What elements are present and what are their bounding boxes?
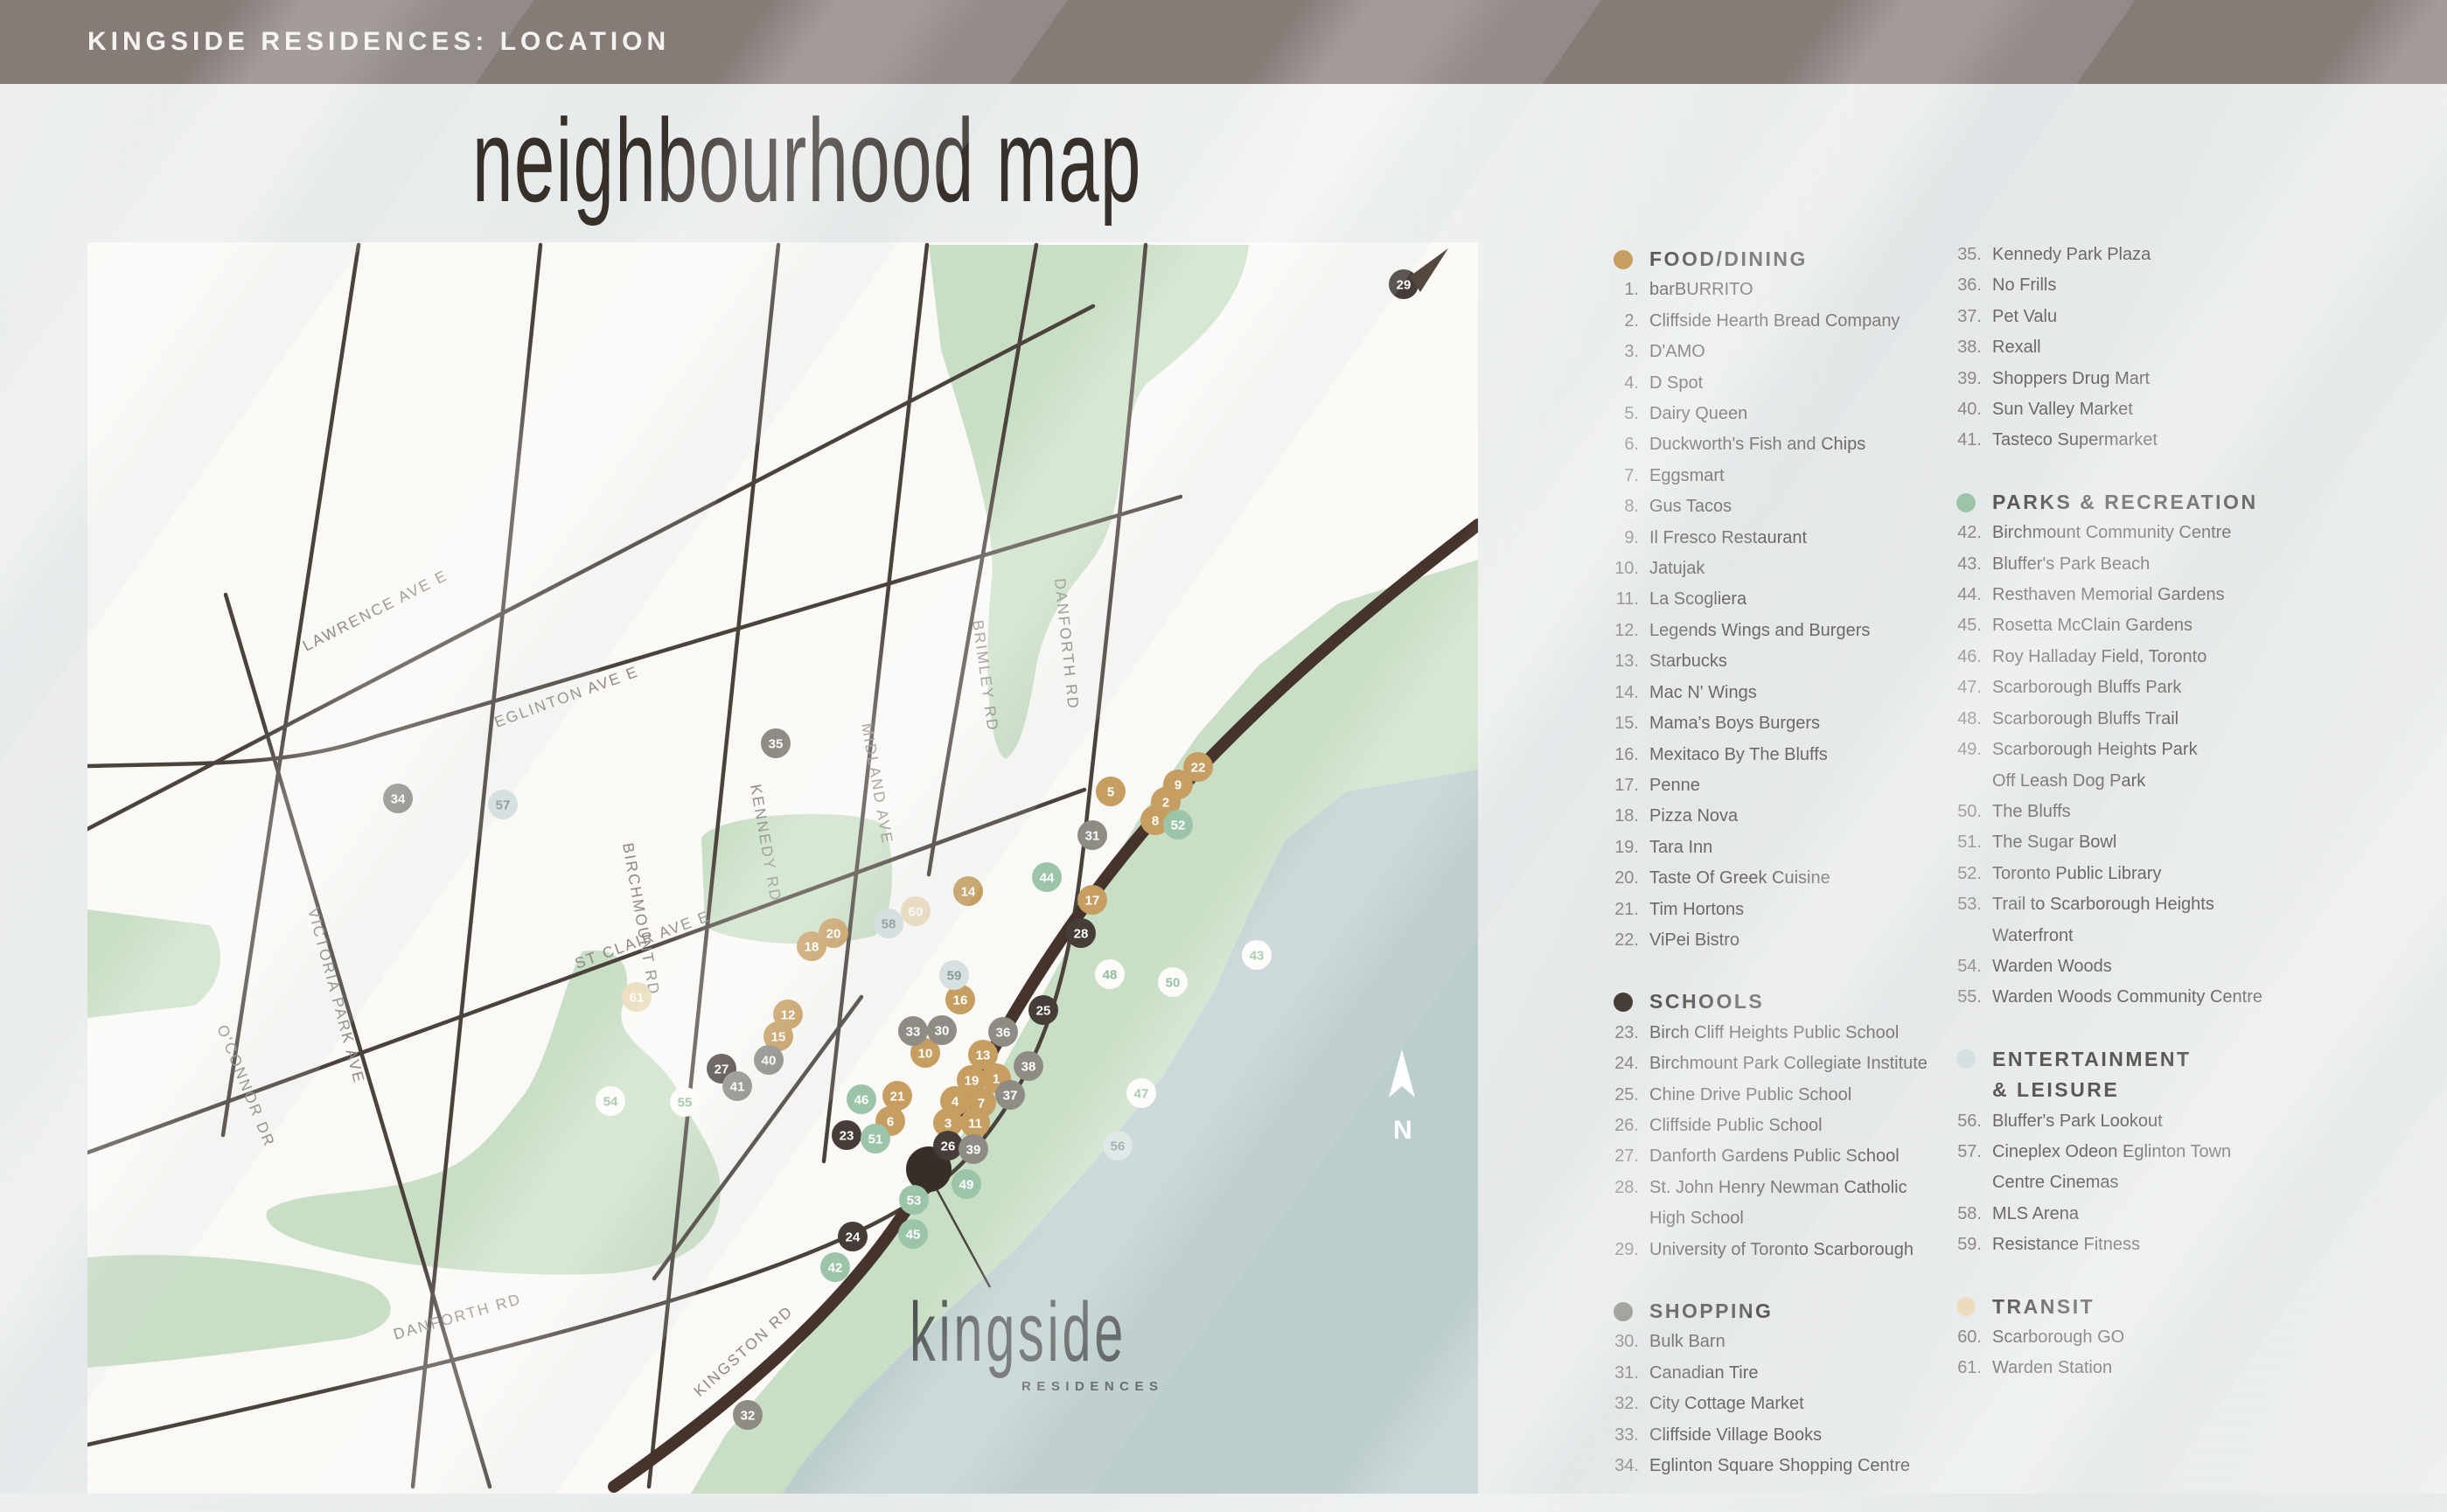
legend-item: 15.Mama's Boys Burgers [1609, 708, 1968, 739]
map-marker-23: 23 [832, 1120, 861, 1150]
legend-item-label: Scarborough Bluffs Park [1992, 672, 2181, 703]
map-marker-34: 34 [383, 784, 413, 813]
legend-item-number: 46. [1952, 642, 1982, 672]
map-marker-21: 21 [882, 1081, 912, 1111]
legend-item: 50.The Bluffs [1952, 797, 2372, 827]
svg-text:49: 49 [959, 1178, 974, 1193]
legend-item-label: Shoppers Drug Mart [1992, 364, 2150, 394]
legend-item: 20.Taste Of Greek Cuisine [1609, 863, 1968, 894]
legend-item-label: barBURRITO [1649, 275, 1753, 305]
legend-item-number: 36. [1952, 270, 1982, 301]
legend-item-label: Mexitaco By The Bluffs [1649, 740, 1828, 770]
map-marker-52: 52 [1163, 810, 1193, 840]
map-marker-55: 55 [670, 1087, 700, 1117]
legend-item-number: 7. [1609, 461, 1639, 491]
svg-text:10: 10 [918, 1047, 933, 1062]
legend-item-label: No Frills [1992, 270, 2056, 301]
legend-item-number: 32. [1609, 1389, 1639, 1419]
svg-text:14: 14 [961, 885, 976, 900]
svg-text:35: 35 [769, 737, 784, 752]
legend-item-label: Centre Cinemas [1992, 1167, 2119, 1198]
legend-item: 61.Warden Station [1952, 1353, 2372, 1383]
map-marker-49: 49 [952, 1169, 981, 1199]
legend-item-label: D'AMO [1649, 337, 1705, 367]
legend-item-label: University of Toronto Scarborough [1649, 1235, 1914, 1265]
svg-text:20: 20 [826, 927, 841, 942]
legend-item-number: 61. [1952, 1353, 1982, 1383]
svg-text:13: 13 [976, 1049, 991, 1063]
legend-item-number: 48. [1952, 704, 1982, 735]
legend-item-number: 50. [1952, 797, 1982, 827]
svg-text:33: 33 [906, 1025, 921, 1040]
svg-text:26: 26 [941, 1139, 956, 1154]
svg-text:36: 36 [996, 1026, 1011, 1041]
legend-item-number: 42. [1952, 518, 1982, 548]
legend-item: 45.Rosetta McClain Gardens [1952, 610, 2372, 641]
legend-item-label: Mama's Boys Burgers [1649, 708, 1820, 739]
legend-item-number: 20. [1609, 863, 1639, 894]
legend-item-label: Pet Valu [1992, 302, 2057, 332]
legend-item-label: Jatujak [1649, 554, 1705, 584]
legend-item-label: The Sugar Bowl [1992, 827, 2116, 858]
map-marker-51: 51 [861, 1124, 890, 1153]
map-marker-59: 59 [939, 960, 969, 990]
legend-item: 23.Birch Cliff Heights Public School [1609, 1018, 1968, 1049]
svg-text:40: 40 [762, 1054, 777, 1069]
legend-item-label: Warden Woods [1992, 951, 2112, 982]
legend-item: 12.Legends Wings and Burgers [1609, 616, 1968, 646]
legend-item: 10.Jatujak [1609, 554, 1968, 584]
legend-item-number: 23. [1609, 1018, 1639, 1049]
map-marker-57: 57 [488, 790, 518, 819]
svg-text:61: 61 [630, 991, 645, 1006]
legend-item: 42.Birchmount Community Centre [1952, 518, 2372, 548]
north-label: N [1393, 1116, 1412, 1145]
legend-parks-dot-icon [1956, 493, 1976, 512]
svg-text:48: 48 [1103, 968, 1118, 983]
legend-item-label: Toronto Public Library [1992, 859, 2161, 889]
svg-text:39: 39 [966, 1143, 981, 1158]
map-marker-36: 36 [988, 1017, 1018, 1047]
legend-item-label: Off Leash Dog Park [1992, 766, 2145, 797]
legend-item-label: Birch Cliff Heights Public School [1649, 1018, 1899, 1049]
legend-item: 7.Eggsmart [1609, 461, 1968, 491]
svg-text:57: 57 [496, 798, 511, 813]
map-marker-48: 48 [1095, 959, 1125, 989]
legend-item-number: 12. [1609, 616, 1639, 646]
map-marker-14: 14 [953, 876, 983, 906]
legend-item-label: Danforth Gardens Public School [1649, 1141, 1900, 1172]
svg-text:19: 19 [965, 1074, 979, 1089]
svg-text:47: 47 [1134, 1087, 1149, 1102]
legend-item-number: 44. [1952, 580, 1982, 610]
legend-item-label: Warden Station [1992, 1353, 2112, 1383]
legend-item-label: Chine Drive Public School [1649, 1080, 1851, 1111]
legend-item: 26.Cliffside Public School [1609, 1111, 1968, 1141]
svg-text:23: 23 [840, 1129, 854, 1144]
legend-item-label: Cliffside Public School [1649, 1111, 1823, 1141]
legend-item: 18.Pizza Nova [1609, 801, 1968, 832]
legend-transit-dot-icon [1956, 1297, 1976, 1316]
legend-item-label: La Scogliera [1649, 584, 1746, 615]
map-marker-13: 13 [968, 1040, 998, 1070]
map-marker-17: 17 [1077, 885, 1107, 915]
legend-item: 53.Trail to Scarborough Heights [1952, 889, 2372, 920]
legend-item-label: Tim Hortons [1649, 895, 1744, 925]
legend-item-number: 52. [1952, 859, 1982, 889]
legend-item-label: Il Fresco Restaurant [1649, 523, 1807, 554]
legend-food-dot-icon [1614, 250, 1633, 269]
legend-item-number: 6. [1609, 429, 1639, 460]
legend-item: 22.ViPei Bistro [1609, 925, 1968, 956]
legend-item-label: High School [1649, 1203, 1744, 1234]
svg-text:51: 51 [868, 1132, 883, 1147]
svg-text:5: 5 [1107, 785, 1114, 800]
legend-item: 54.Warden Woods [1952, 951, 2372, 982]
legend-item-label: D Spot [1649, 368, 1703, 399]
svg-text:34: 34 [391, 792, 406, 807]
legend-item: 37.Pet Valu [1952, 302, 2372, 332]
legend-item: 39.Shoppers Drug Mart [1952, 364, 2372, 394]
legend-item-number: 14. [1609, 678, 1639, 708]
svg-text:3: 3 [945, 1117, 952, 1132]
legend-item: 48.Scarborough Bluffs Trail [1952, 704, 2372, 735]
map-marker-54: 54 [596, 1086, 625, 1116]
svg-text:30: 30 [935, 1024, 950, 1039]
legend-item-label: Roy Halladay Field, Toronto [1992, 642, 2206, 672]
svg-text:25: 25 [1036, 1004, 1051, 1019]
legend-item-number: 34. [1609, 1451, 1639, 1481]
svg-text:9: 9 [1175, 778, 1182, 793]
legend-item: 51.The Sugar Bowl [1952, 827, 2372, 858]
map-marker-47: 47 [1126, 1078, 1156, 1108]
legend-column-1: FOOD/DINING1.barBURRITO2.Cliffside Heart… [1609, 244, 1968, 1512]
map-marker-45: 45 [898, 1219, 928, 1249]
map-marker-41: 41 [722, 1071, 752, 1101]
svg-text:29: 29 [1397, 278, 1412, 293]
legend-item-number: 2. [1609, 306, 1639, 337]
legend-item: 34.Eglinton Square Shopping Centre [1609, 1451, 1968, 1481]
legend-item: 16.Mexitaco By The Bluffs [1609, 740, 1968, 770]
legend-item-number: 39. [1952, 364, 1982, 394]
kingside-logo: kingside RESIDENCES [910, 1285, 1164, 1394]
svg-text:52: 52 [1171, 819, 1186, 833]
legend-item-label: Rexall [1992, 332, 2041, 363]
svg-text:56: 56 [1111, 1139, 1126, 1154]
legend-item: 59.Resistance Fitness [1952, 1230, 2372, 1260]
svg-text:12: 12 [781, 1008, 796, 1023]
legend-item-label: Eggsmart [1649, 461, 1725, 491]
legend-item-number: 24. [1609, 1049, 1639, 1079]
legend-item-number: 49. [1952, 735, 1982, 765]
legend-item: 56.Bluffer's Park Lookout [1952, 1106, 2372, 1137]
legend-item-number: 51. [1952, 827, 1982, 858]
legend-section-title: TRANSIT [1992, 1292, 2095, 1322]
legend-item-number: 9. [1609, 523, 1639, 554]
legend-item-number: 60. [1952, 1322, 1982, 1353]
legend-item-label: Cliffside Hearth Bread Company [1649, 306, 1900, 337]
legend-item-number: 11. [1609, 584, 1639, 615]
svg-text:44: 44 [1040, 871, 1055, 886]
legend-section-title: PARKS & RECREATION [1992, 487, 2258, 518]
svg-text:28: 28 [1074, 927, 1089, 942]
legend-section-title: & LEISURE [1952, 1075, 2372, 1105]
legend-item-label: St. John Henry Newman Catholic [1649, 1173, 1907, 1203]
svg-text:46: 46 [854, 1093, 869, 1108]
legend-section: SCHOOLS23.Birch Cliff Heights Public Sch… [1609, 986, 1968, 1265]
header-bar: KINGSIDE RESIDENCES: LOCATION [0, 0, 2447, 84]
legend-section: ENTERTAINMENT& LEISURE56.Bluffer's Park … [1952, 1044, 2372, 1261]
legend-item: 47.Scarborough Bluffs Park [1952, 672, 2372, 703]
legend-item-number: 21. [1609, 895, 1639, 925]
legend-entertainment-dot-icon [1956, 1049, 1976, 1069]
svg-text:55: 55 [678, 1096, 693, 1111]
map-marker-37: 37 [995, 1080, 1025, 1110]
legend-item-label: Birchmount Community Centre [1992, 518, 2231, 548]
svg-text:38: 38 [1021, 1060, 1036, 1075]
legend-item: 49.Off Leash Dog Park [1952, 766, 2372, 797]
legend-item-number: 47. [1952, 672, 1982, 703]
legend-item-label: Rosetta McClain Gardens [1992, 610, 2193, 641]
map-marker-50: 50 [1158, 967, 1188, 997]
legend-item: 57.Cineplex Odeon Eglinton Town [1952, 1137, 2372, 1167]
legend-item-number: 19. [1609, 833, 1639, 863]
legend-item-label: Bluffer's Park Beach [1992, 549, 2150, 580]
legend-item: 46.Roy Halladay Field, Toronto [1952, 642, 2372, 672]
legend-item: 17.Penne [1609, 770, 1968, 801]
legend-section-title: SCHOOLS [1649, 986, 1764, 1017]
legend-item-label: Cineplex Odeon Eglinton Town [1992, 1137, 2231, 1167]
legend-item-number: 37. [1952, 302, 1982, 332]
map-marker-35: 35 [761, 728, 791, 758]
legend-item-number: 15. [1609, 708, 1639, 739]
legend-item: 9.Il Fresco Restaurant [1609, 523, 1968, 554]
legend-item-number: 38. [1952, 332, 1982, 363]
map-marker-61: 61 [622, 982, 652, 1012]
legend-item-number: 40. [1952, 394, 1982, 425]
svg-text:11: 11 [968, 1117, 982, 1132]
svg-text:43: 43 [1250, 949, 1265, 964]
legend-item-number: 57. [1952, 1137, 1982, 1167]
legend-item: 60.Scarborough GO [1952, 1322, 2372, 1353]
map-marker-32: 32 [733, 1400, 763, 1430]
legend-item: 36.No Frills [1952, 270, 2372, 301]
legend-item: 49.Scarborough Heights Park [1952, 735, 2372, 765]
legend-item-number: 43. [1952, 549, 1982, 580]
legend-item-number: 26. [1609, 1111, 1639, 1141]
legend-item-number: 18. [1609, 801, 1639, 832]
legend-item: 43.Bluffer's Park Beach [1952, 549, 2372, 580]
legend-item-number: 31. [1609, 1358, 1639, 1389]
legend-item-number: 29. [1609, 1235, 1639, 1265]
legend-item-label: Bulk Barn [1649, 1327, 1725, 1357]
legend-item-number: 54. [1952, 951, 1982, 982]
legend-item: 33.Cliffside Village Books [1609, 1420, 1968, 1451]
legend-item: 4.D Spot [1609, 368, 1968, 399]
legend-item: 19.Tara Inn [1609, 833, 1968, 863]
svg-text:6: 6 [887, 1115, 894, 1130]
legend-item: 28.High School [1609, 1203, 1968, 1234]
legend-item-label: MLS Arena [1992, 1199, 2079, 1230]
legend-item: 29.University of Toronto Scarborough [1609, 1235, 1968, 1265]
map-title: neighbourhood map [472, 101, 1552, 219]
legend-item: 25.Chine Drive Public School [1609, 1080, 1968, 1111]
legend-item-label: Resistance Fitness [1992, 1230, 2140, 1260]
legend-item-number: 16. [1609, 740, 1639, 770]
legend-section: PARKS & RECREATION42.Birchmount Communit… [1952, 487, 2372, 1014]
map-marker-56: 56 [1103, 1131, 1133, 1160]
legend-item-number: 22. [1609, 925, 1639, 956]
legend-item-number: 1. [1609, 275, 1639, 305]
legend-item-label: The Bluffs [1992, 797, 2071, 827]
legend-item: 8.Gus Tacos [1609, 491, 1968, 522]
legend-item: 14.Mac N' Wings [1609, 678, 1968, 708]
legend-item-label: Eglinton Square Shopping Centre [1649, 1451, 1910, 1481]
legend-item-number: 4. [1609, 368, 1639, 399]
map-marker-5: 5 [1096, 777, 1126, 806]
legend-item: 41.Tasteco Supermarket [1952, 425, 2372, 456]
legend-item-label: Waterfront [1992, 921, 2074, 951]
legend-item-number: 27. [1609, 1141, 1639, 1172]
legend-item-label: Scarborough Heights Park [1992, 735, 2198, 765]
svg-text:60: 60 [909, 905, 924, 920]
legend-item: 32.City Cottage Market [1609, 1389, 1968, 1419]
legend-item-number: 10. [1609, 554, 1639, 584]
legend-item-label: City Cottage Market [1649, 1389, 1804, 1419]
legend-shopping-dot-icon [1614, 1302, 1633, 1321]
map-marker-43: 43 [1242, 940, 1272, 970]
legend-item-label: Birchmount Park Collegiate Institute [1649, 1049, 1928, 1079]
legend-item-number: 35. [1952, 240, 1982, 270]
legend-item-number: 8. [1609, 491, 1639, 522]
legend-item: 30.Bulk Barn [1609, 1327, 1968, 1357]
map-marker-42: 42 [820, 1252, 850, 1282]
legend-item: 35.Kennedy Park Plaza [1952, 240, 2372, 270]
legend-item-number: 56. [1952, 1106, 1982, 1137]
legend-item: 44.Resthaven Memorial Gardens [1952, 580, 2372, 610]
map-marker-25: 25 [1028, 995, 1058, 1025]
legend-item-label: Cliffside Village Books [1649, 1420, 1822, 1451]
legend-item-label: Bluffer's Park Lookout [1992, 1106, 2163, 1137]
map-marker-11: 11 [960, 1108, 990, 1138]
svg-text:1: 1 [993, 1072, 1000, 1087]
legend-item: 3.D'AMO [1609, 337, 1968, 367]
legend-item: 13.Starbucks [1609, 646, 1968, 677]
legend-item: 31.Canadian Tire [1609, 1358, 1968, 1389]
legend-item-label: Gus Tacos [1649, 491, 1732, 522]
map-marker-40: 40 [754, 1045, 784, 1075]
legend-item-label: Canadian Tire [1649, 1358, 1759, 1389]
map-marker-60: 60 [901, 896, 931, 926]
legend-item-number: 28. [1609, 1173, 1639, 1203]
legend-section-title: SHOPPING [1649, 1296, 1773, 1327]
legend-item-label: Pizza Nova [1649, 801, 1738, 832]
svg-text:45: 45 [906, 1228, 921, 1243]
legend-item: 58.MLS Arena [1952, 1199, 2372, 1230]
svg-text:27: 27 [715, 1063, 729, 1077]
neighbourhood-map: LAWRENCE AVE EVICTORIA PARK AVEO'CONNOR … [87, 242, 1478, 1494]
svg-text:18: 18 [805, 940, 819, 955]
legend-item-number: 41. [1952, 425, 1982, 456]
legend-item-number: 59. [1952, 1230, 1982, 1260]
legend-item: 11.La Scogliera [1609, 584, 1968, 615]
legend-item: 5.Dairy Queen [1609, 399, 1968, 429]
svg-text:58: 58 [882, 917, 896, 932]
svg-text:42: 42 [828, 1261, 843, 1276]
legend-item-label: Resthaven Memorial Gardens [1992, 580, 2225, 610]
legend-item-label: Kennedy Park Plaza [1992, 240, 2151, 270]
kingside-logo-name: kingside [910, 1285, 1126, 1378]
legend-item-number: 45. [1952, 610, 1982, 641]
legend-item-number: 53. [1952, 889, 1982, 920]
legend-item: 27.Danforth Gardens Public School [1609, 1141, 1968, 1172]
legend-item-label: Taste Of Greek Cuisine [1649, 863, 1830, 894]
map-marker-33: 33 [898, 1016, 928, 1046]
map-marker-26: 26 [933, 1131, 963, 1160]
legend-item-number: 30. [1609, 1327, 1639, 1357]
map-marker-30: 30 [927, 1015, 957, 1045]
svg-text:37: 37 [1003, 1089, 1018, 1104]
legend-item-number: 58. [1952, 1199, 1982, 1230]
legend-item: 2.Cliffside Hearth Bread Company [1609, 306, 1968, 337]
legend-item-label: Sun Valley Market [1992, 394, 2133, 425]
svg-text:54: 54 [603, 1095, 618, 1110]
legend-item-number: 55. [1952, 982, 1982, 1013]
svg-text:50: 50 [1166, 976, 1181, 991]
map-marker-53: 53 [899, 1185, 929, 1215]
legend-item-label: Legends Wings and Burgers [1649, 616, 1870, 646]
legend-section-title: ENTERTAINMENT [1992, 1044, 2192, 1075]
svg-text:17: 17 [1085, 894, 1100, 909]
legend-item-label: ViPei Bistro [1649, 925, 1739, 956]
svg-text:31: 31 [1085, 829, 1100, 844]
svg-text:53: 53 [907, 1194, 922, 1209]
legend-item-label: Duckworth's Fish and Chips [1649, 429, 1865, 460]
map-marker-20: 20 [819, 918, 848, 948]
legend-section: TRANSIT60.Scarborough GO61.Warden Statio… [1952, 1292, 2372, 1384]
legend-item-label: Trail to Scarborough Heights [1992, 889, 2214, 920]
map-marker-44: 44 [1032, 862, 1062, 892]
legend-item-label: Penne [1649, 770, 1700, 801]
legend-item-number: 3. [1609, 337, 1639, 367]
kingside-logo-sub: RESIDENCES [1021, 1379, 1164, 1394]
legend-item-label: Scarborough GO [1992, 1322, 2124, 1353]
legend-item: 53.Waterfront [1952, 921, 2372, 951]
legend-item-label: Mac N' Wings [1649, 678, 1757, 708]
map-marker-19: 19 [957, 1065, 986, 1095]
legend-item: 55.Warden Woods Community Centre [1952, 982, 2372, 1013]
legend-item: 21.Tim Hortons [1609, 895, 1968, 925]
map-marker-39: 39 [959, 1134, 988, 1164]
legend-item: 1.barBURRITO [1609, 275, 1968, 305]
legend-item: 40.Sun Valley Market [1952, 394, 2372, 425]
legend-item-label: Dairy Queen [1649, 399, 1747, 429]
svg-text:8: 8 [1152, 814, 1159, 829]
legend-item-label: Warden Woods Community Centre [1992, 982, 2262, 1013]
legend-column-2: 35.Kennedy Park Plaza36.No Frills37.Pet … [1952, 240, 2372, 1415]
legend-item-label: Scarborough Bluffs Trail [1992, 704, 2179, 735]
map-marker-28: 28 [1066, 918, 1096, 948]
legend-item: 28.St. John Henry Newman Catholic [1609, 1173, 1968, 1203]
legend-item-label: Starbucks [1649, 646, 1727, 677]
legend-section: 35.Kennedy Park Plaza36.No Frills37.Pet … [1952, 240, 2372, 456]
svg-text:15: 15 [771, 1030, 786, 1045]
legend-item: 57.Centre Cinemas [1952, 1167, 2372, 1198]
legend-item: 6.Duckworth's Fish and Chips [1609, 429, 1968, 460]
legend-item-label: Tara Inn [1649, 833, 1712, 863]
svg-text:41: 41 [730, 1080, 745, 1095]
svg-text:16: 16 [953, 993, 968, 1008]
